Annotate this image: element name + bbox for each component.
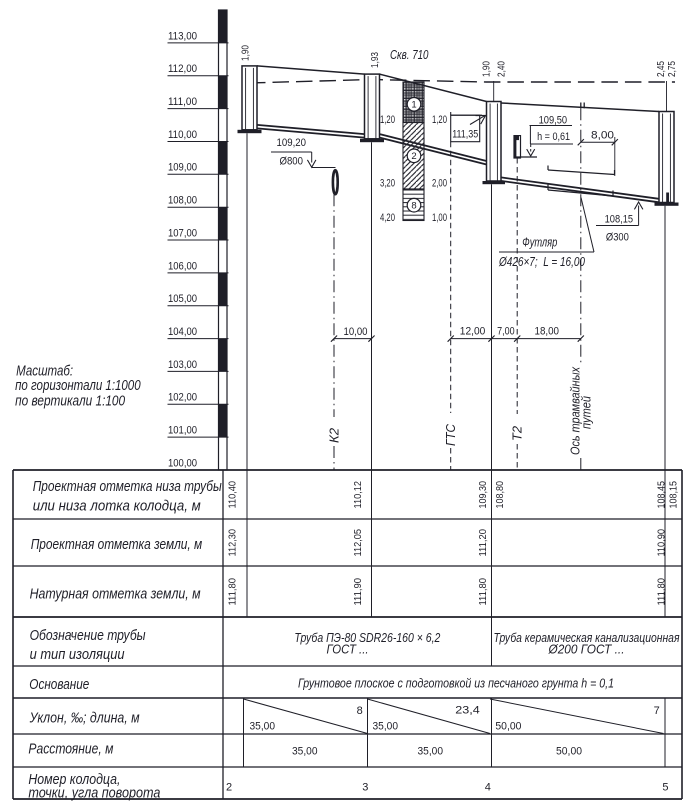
svg-text:111,80: 111,80 bbox=[227, 578, 239, 606]
svg-text:по вертикали 1:100: по вертикали 1:100 bbox=[15, 394, 125, 410]
svg-text:2,40: 2,40 bbox=[496, 61, 508, 77]
svg-text:4: 4 bbox=[485, 782, 491, 794]
svg-text:10,00: 10,00 bbox=[344, 326, 368, 338]
svg-text:2,00: 2,00 bbox=[432, 177, 447, 189]
svg-text:103,00: 103,00 bbox=[168, 359, 197, 371]
svg-text:1,20: 1,20 bbox=[380, 114, 395, 126]
svg-text:Обозначение трубы: Обозначение трубы bbox=[30, 628, 146, 644]
svg-text:105,00: 105,00 bbox=[168, 293, 197, 305]
svg-text:108,00: 108,00 bbox=[168, 195, 197, 207]
svg-text:111,90: 111,90 bbox=[352, 578, 364, 606]
svg-text:50,00: 50,00 bbox=[556, 746, 582, 758]
svg-text:109,00: 109,00 bbox=[168, 162, 197, 174]
svg-text:35,00: 35,00 bbox=[250, 721, 276, 733]
svg-text:35,00: 35,00 bbox=[373, 721, 399, 733]
svg-text:Ø300: Ø300 bbox=[606, 232, 629, 244]
svg-text:8: 8 bbox=[411, 201, 416, 212]
svg-text:111,35: 111,35 bbox=[452, 129, 478, 141]
svg-text:35,00: 35,00 bbox=[418, 746, 444, 758]
svg-text:113,00: 113,00 bbox=[168, 30, 197, 42]
svg-text:Грунтовое плоское с подготовко: Грунтовое плоское с подготовкой из песча… bbox=[298, 677, 614, 691]
svg-text:Основание: Основание bbox=[29, 677, 89, 693]
svg-text:ГТС: ГТС bbox=[444, 423, 458, 446]
svg-text:Расстояние, м: Расстояние, м bbox=[28, 742, 113, 758]
svg-text:110,40: 110,40 bbox=[227, 481, 239, 509]
svg-text:1,90: 1,90 bbox=[481, 61, 493, 77]
svg-text:50,00: 50,00 bbox=[495, 721, 521, 733]
svg-text:108,15: 108,15 bbox=[605, 213, 634, 225]
svg-text:Скв. 710: Скв. 710 bbox=[390, 48, 429, 62]
svg-text:111,00: 111,00 bbox=[168, 96, 197, 108]
svg-text:7,00: 7,00 bbox=[497, 326, 514, 338]
svg-text:112,00: 112,00 bbox=[168, 63, 197, 75]
svg-text:100,00: 100,00 bbox=[168, 457, 197, 469]
svg-text:Футляр: Футляр bbox=[522, 236, 557, 250]
svg-text:107,00: 107,00 bbox=[168, 227, 197, 239]
svg-text:2: 2 bbox=[411, 151, 416, 162]
svg-text:112,05: 112,05 bbox=[352, 529, 364, 557]
svg-text:Ø200 ГОСТ ...: Ø200 ГОСТ ... bbox=[548, 643, 625, 657]
svg-text:111,80: 111,80 bbox=[477, 578, 489, 606]
svg-text:110,90: 110,90 bbox=[655, 529, 667, 557]
svg-text:h = 0,61: h = 0,61 bbox=[537, 131, 570, 143]
svg-text:109,30: 109,30 bbox=[477, 481, 489, 509]
svg-text:3: 3 bbox=[362, 782, 368, 794]
svg-text:точки, угла поворота: точки, угла поворота bbox=[28, 786, 160, 802]
svg-text:2,45: 2,45 bbox=[655, 61, 667, 77]
svg-text:Т2: Т2 bbox=[511, 426, 525, 441]
svg-text:Ø426×7; L = 16,00: Ø426×7; L = 16,00 bbox=[498, 255, 585, 269]
svg-text:102,00: 102,00 bbox=[168, 392, 197, 404]
svg-text:1,90: 1,90 bbox=[240, 45, 252, 61]
svg-text:Натурная отметка земли, м: Натурная отметка земли, м bbox=[30, 587, 201, 603]
svg-text:Проектная отметка низа трубы: Проектная отметка низа трубы bbox=[33, 479, 222, 495]
svg-text:110,12: 110,12 bbox=[352, 481, 364, 509]
svg-text:110,00: 110,00 bbox=[168, 129, 197, 141]
svg-text:2: 2 bbox=[226, 782, 232, 794]
svg-text:23,4: 23,4 bbox=[455, 705, 480, 717]
svg-text:1,93: 1,93 bbox=[369, 52, 381, 68]
svg-text:путей: путей bbox=[580, 396, 594, 429]
svg-text:1,00: 1,00 bbox=[432, 212, 447, 224]
svg-text:8: 8 bbox=[357, 705, 363, 717]
svg-text:111,20: 111,20 bbox=[477, 529, 489, 557]
svg-text:8,00: 8,00 bbox=[591, 130, 614, 142]
svg-text:Масштаб:: Масштаб: bbox=[16, 363, 73, 379]
svg-text:104,00: 104,00 bbox=[168, 326, 197, 338]
svg-text:1,20: 1,20 bbox=[432, 114, 447, 126]
svg-text:и тип изоляции: и тип изоляции bbox=[30, 647, 125, 663]
svg-text:18,00: 18,00 bbox=[535, 326, 560, 338]
svg-text:108,45: 108,45 bbox=[655, 481, 667, 509]
svg-text:3,20: 3,20 bbox=[380, 177, 395, 189]
svg-text:К2: К2 bbox=[328, 428, 342, 443]
svg-text:Ø800: Ø800 bbox=[280, 155, 304, 167]
svg-text:1: 1 bbox=[411, 100, 416, 111]
svg-text:Проектная отметка земли, м: Проектная отметка земли, м bbox=[31, 537, 203, 553]
svg-text:или низа лотка колодца, м: или низа лотка колодца, м bbox=[33, 499, 201, 515]
svg-text:2,75: 2,75 bbox=[666, 61, 678, 77]
svg-text:ГОСТ ...: ГОСТ ... bbox=[327, 643, 369, 657]
svg-text:109,20: 109,20 bbox=[277, 137, 307, 149]
svg-text:35,00: 35,00 bbox=[292, 746, 318, 758]
svg-text:4,20: 4,20 bbox=[380, 212, 395, 224]
svg-text:106,00: 106,00 bbox=[168, 260, 197, 272]
svg-text:112,30: 112,30 bbox=[227, 529, 239, 557]
svg-text:111,80: 111,80 bbox=[655, 578, 667, 606]
svg-text:108,80: 108,80 bbox=[494, 481, 506, 509]
svg-text:101,00: 101,00 bbox=[168, 425, 197, 437]
svg-text:5: 5 bbox=[662, 782, 668, 794]
svg-text:12,00: 12,00 bbox=[460, 326, 486, 338]
svg-text:109,50: 109,50 bbox=[539, 114, 568, 126]
svg-text:по горизонтали 1:1000: по горизонтали 1:1000 bbox=[15, 378, 141, 394]
svg-text:Уклон, ‰; длина, м: Уклон, ‰; длина, м bbox=[29, 711, 140, 727]
svg-text:7: 7 bbox=[654, 705, 660, 717]
svg-text:108,15: 108,15 bbox=[668, 481, 680, 509]
